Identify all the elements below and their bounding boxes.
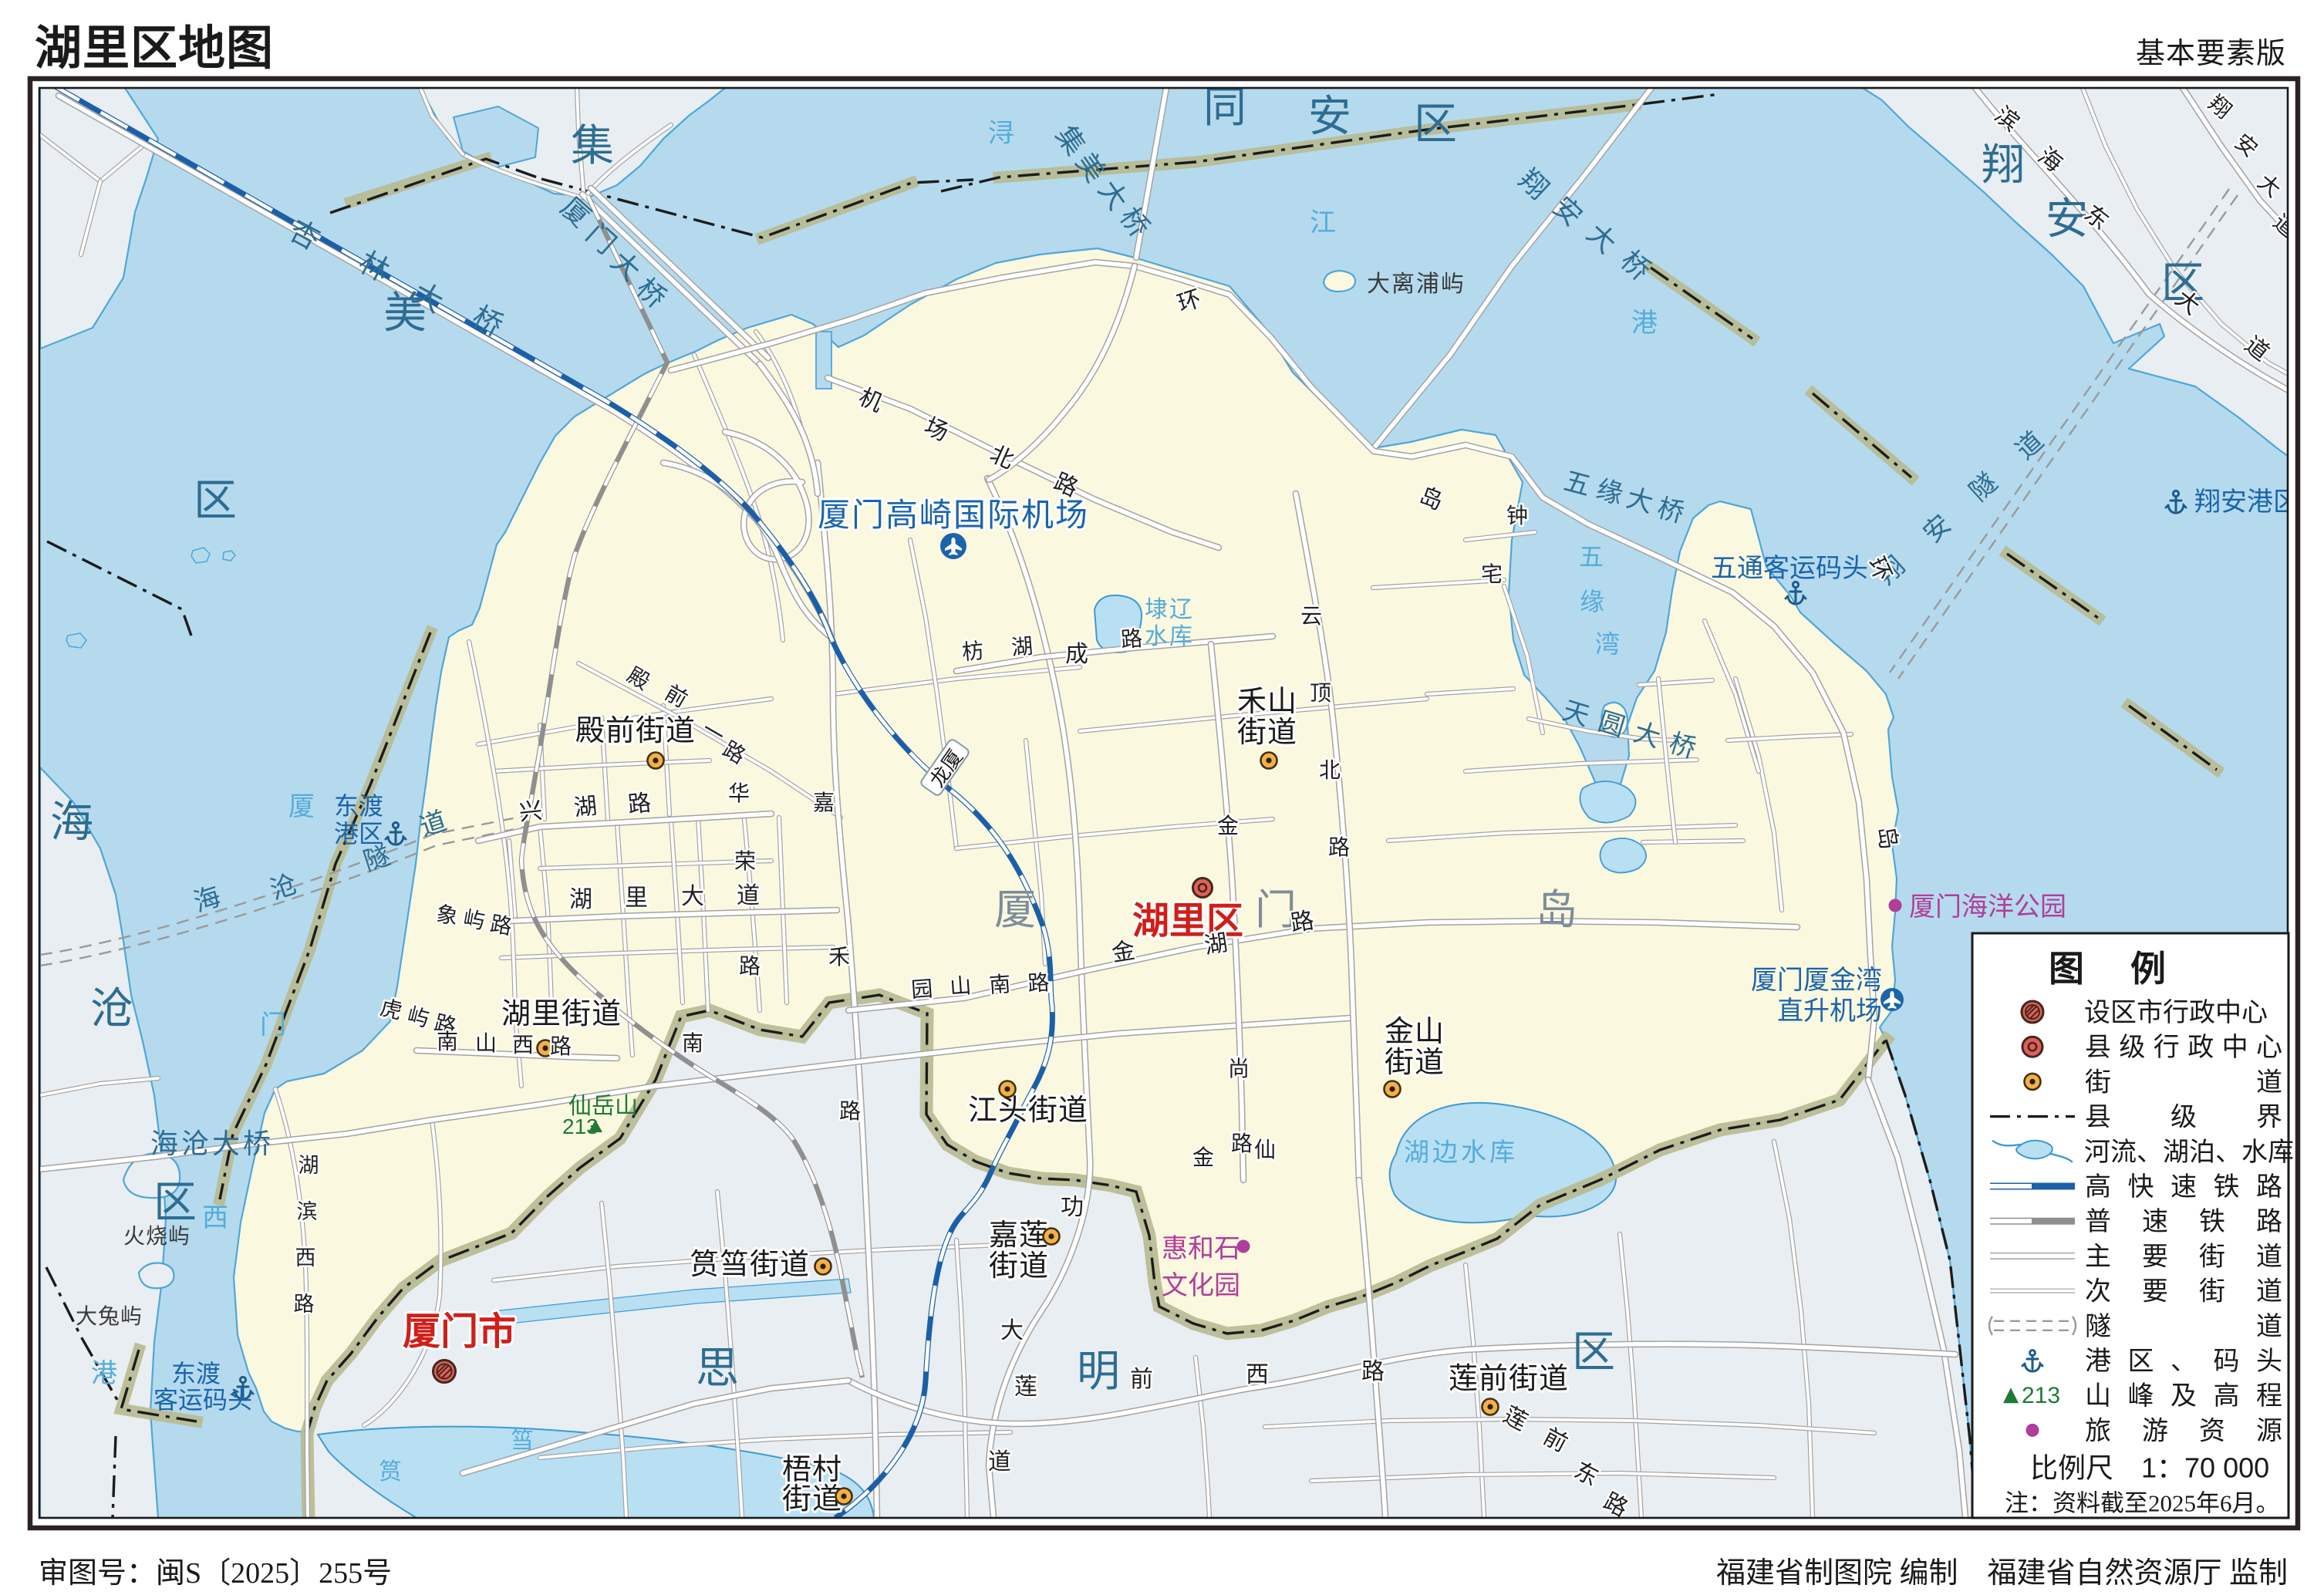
svg-text:南: 南 [682, 1031, 703, 1056]
svg-text:思: 思 [696, 1345, 739, 1393]
svg-text:殿前街道: 殿前街道 [575, 715, 696, 747]
svg-text:西: 西 [202, 1204, 228, 1232]
svg-text:程: 程 [2256, 1382, 2282, 1411]
svg-text:注：资料截至2025年6月。: 注：资料截至2025年6月。 [2005, 1490, 2280, 1517]
svg-text:区: 区 [1414, 101, 1457, 149]
svg-text:象: 象 [434, 902, 460, 929]
svg-text:213: 213 [562, 1114, 599, 1138]
svg-text:主: 主 [2085, 1243, 2111, 1271]
svg-text:道: 道 [2256, 1312, 2282, 1341]
svg-text:级: 级 [2119, 1033, 2145, 1062]
svg-text:县: 县 [2085, 1104, 2111, 1132]
svg-text:速: 速 [2142, 1208, 2168, 1236]
svg-text:门: 门 [260, 1010, 286, 1040]
svg-text:文化园: 文化园 [1162, 1271, 1240, 1300]
svg-text:码: 码 [2214, 1347, 2240, 1376]
svg-text:海: 海 [50, 799, 93, 847]
svg-text:路: 路 [2256, 1172, 2282, 1202]
svg-text:园: 园 [910, 977, 933, 1003]
svg-text:街道: 街道 [782, 1483, 842, 1516]
svg-text:滨: 滨 [297, 1200, 318, 1223]
svg-text:明: 明 [1077, 1348, 1120, 1396]
svg-text:岛: 岛 [1873, 824, 1902, 851]
svg-text:道: 道 [737, 883, 760, 909]
svg-text:路: 路 [488, 912, 514, 939]
svg-text:福建省制图院 编制 福建省自然资源厅 监制: 福建省制图院 编制 福建省自然资源厅 监制 [1716, 1557, 2288, 1590]
svg-text:厦门海洋公园: 厦门海洋公园 [1909, 892, 2066, 922]
svg-text:厦门市: 厦门市 [403, 1311, 516, 1353]
svg-text:铁: 铁 [2199, 1207, 2225, 1236]
svg-text:路: 路 [550, 1034, 572, 1059]
svg-text:路: 路 [1027, 970, 1050, 996]
svg-text:资: 资 [2199, 1417, 2225, 1445]
svg-text:湾: 湾 [1595, 630, 1620, 658]
svg-text:西: 西 [295, 1246, 316, 1270]
svg-text:路: 路 [1231, 1131, 1253, 1156]
svg-text:直升机场: 直升机场 [1777, 996, 1882, 1026]
svg-text:湖里区: 湖里区 [1132, 901, 1243, 942]
svg-text:山: 山 [949, 973, 972, 1000]
svg-text:快: 快 [2128, 1172, 2154, 1202]
svg-text:级: 级 [2171, 1103, 2197, 1132]
svg-text:港: 港 [91, 1360, 117, 1388]
svg-text:海沧大桥: 海沧大桥 [150, 1128, 274, 1159]
svg-text:厦: 厦 [288, 793, 315, 821]
svg-text:东渡: 东渡 [334, 792, 383, 820]
svg-text:安: 安 [1308, 93, 1351, 141]
svg-text:山: 山 [475, 1031, 497, 1056]
svg-text:区: 区 [153, 1179, 197, 1227]
svg-text:港区: 港区 [334, 820, 383, 848]
svg-text:江: 江 [1310, 209, 1336, 238]
svg-text:顶: 顶 [1310, 682, 1331, 706]
svg-text:高: 高 [2214, 1381, 2240, 1411]
svg-text:设区市行政中心: 设区市行政中心 [2084, 998, 2268, 1027]
svg-text:路: 路 [839, 1099, 861, 1124]
svg-text:枋: 枋 [961, 639, 985, 665]
svg-text:南: 南 [437, 1030, 458, 1054]
svg-text:头: 头 [2256, 1347, 2282, 1376]
svg-text:宅: 宅 [1481, 562, 1503, 587]
svg-text:213: 213 [2022, 1383, 2060, 1408]
svg-text:道: 道 [2256, 1067, 2282, 1097]
svg-text:厦: 厦 [994, 887, 1036, 933]
svg-text:街道: 街道 [1237, 717, 1297, 749]
svg-text:西: 西 [1246, 1362, 1269, 1388]
svg-text:路: 路 [2256, 1207, 2282, 1236]
svg-text:华: 华 [728, 781, 750, 806]
svg-text:缘: 缘 [1580, 588, 1604, 615]
svg-text:水库: 水库 [1145, 624, 1194, 649]
svg-text:道: 道 [2256, 1242, 2282, 1271]
svg-text:区: 区 [194, 477, 237, 525]
svg-text:厦门厦金湾: 厦门厦金湾 [1751, 966, 1882, 995]
svg-text:五通客运码头: 五通客运码头 [1711, 554, 1868, 583]
svg-text:路: 路 [1328, 835, 1350, 860]
svg-text:行: 行 [2154, 1033, 2180, 1062]
svg-text:港: 港 [1631, 309, 1658, 338]
svg-text:要: 要 [2142, 1243, 2168, 1271]
svg-text:普: 普 [2085, 1207, 2111, 1236]
svg-text:莲: 莲 [1014, 1374, 1037, 1400]
svg-text:功: 功 [1061, 1195, 1084, 1220]
svg-text:路: 路 [1361, 1359, 1385, 1384]
svg-text:前: 前 [1130, 1367, 1153, 1392]
svg-text:仙: 仙 [1254, 1138, 1276, 1162]
svg-text:及: 及 [2171, 1382, 2197, 1411]
svg-text:岛: 岛 [1536, 887, 1577, 933]
svg-text:嘉莲: 嘉莲 [989, 1219, 1049, 1252]
svg-text:莲前街道: 莲前街道 [1449, 1363, 1569, 1395]
svg-text:中: 中 [2222, 1033, 2248, 1062]
svg-text:铁: 铁 [2214, 1172, 2240, 1202]
svg-text:路: 路 [626, 791, 652, 818]
svg-text:东渡: 东渡 [171, 1360, 221, 1388]
svg-text:湖: 湖 [299, 1154, 319, 1177]
svg-text:屿: 屿 [461, 906, 487, 934]
svg-text:比例尺 1：70 000: 比例尺 1：70 000 [2030, 1452, 2269, 1484]
svg-text:大兔屿: 大兔屿 [76, 1304, 143, 1329]
svg-text:湖: 湖 [1202, 930, 1229, 959]
svg-text:山: 山 [2085, 1382, 2111, 1411]
svg-text:厦门高崎国际机场: 厦门高崎国际机场 [818, 497, 1089, 533]
svg-text:尚: 尚 [1228, 1057, 1250, 1081]
svg-text:翔: 翔 [1982, 142, 2025, 190]
svg-text:游: 游 [2142, 1416, 2168, 1445]
svg-text:金: 金 [1110, 938, 1137, 966]
svg-text:、: 、 [2171, 1347, 2197, 1376]
svg-text:江头街道: 江头街道 [968, 1094, 1088, 1127]
svg-text:禾山: 禾山 [1237, 686, 1297, 718]
svg-text:金: 金 [1217, 814, 1239, 838]
svg-text:禾: 禾 [828, 946, 850, 969]
svg-text:要: 要 [2142, 1278, 2168, 1307]
svg-text:街道: 街道 [1385, 1047, 1445, 1079]
svg-text:路: 路 [1120, 626, 1144, 652]
svg-text:火烧屿: 火烧屿 [123, 1224, 191, 1249]
svg-text:道: 道 [988, 1449, 1011, 1475]
svg-text:湖里街道: 湖里街道 [501, 998, 622, 1030]
svg-text:审图号：闽S〔2025〕255号: 审图号：闽S〔2025〕255号 [39, 1557, 392, 1590]
svg-text:兴: 兴 [518, 798, 543, 826]
svg-text:西: 西 [512, 1034, 534, 1057]
svg-text:港: 港 [2085, 1347, 2111, 1376]
svg-text:客运码头: 客运码头 [153, 1386, 252, 1414]
svg-text:街: 街 [2085, 1067, 2111, 1097]
svg-text:湖: 湖 [569, 887, 592, 912]
svg-text:界: 界 [2256, 1104, 2282, 1132]
svg-text:心: 心 [2256, 1034, 2282, 1062]
svg-text:路: 路 [739, 954, 761, 979]
svg-text:筜: 筜 [511, 1428, 534, 1454]
svg-text:北: 北 [1319, 759, 1341, 783]
svg-text:政: 政 [2187, 1033, 2214, 1062]
svg-text:街道: 街道 [989, 1250, 1049, 1283]
svg-text:湖边水库: 湖边水库 [1404, 1138, 1518, 1167]
svg-text:成: 成 [1065, 642, 1088, 667]
svg-text:大: 大 [681, 884, 704, 909]
svg-text:道: 道 [2256, 1277, 2282, 1307]
svg-text:峰: 峰 [2128, 1381, 2154, 1411]
svg-text:隧: 隧 [2085, 1313, 2111, 1341]
svg-text:区: 区 [1572, 1329, 1615, 1377]
svg-text:金山: 金山 [1385, 1016, 1445, 1048]
svg-text:县: 县 [2085, 1034, 2111, 1062]
svg-text:街: 街 [2199, 1277, 2225, 1307]
svg-text:同: 同 [1203, 84, 1246, 132]
svg-text:嘉: 嘉 [813, 791, 835, 815]
svg-text:图例: 图例 [2049, 949, 2212, 989]
svg-text:速: 速 [2171, 1173, 2197, 1202]
svg-text:高: 高 [2085, 1172, 2111, 1202]
svg-text:街: 街 [2199, 1242, 2225, 1271]
svg-text:源: 源 [2256, 1417, 2282, 1445]
svg-text:五: 五 [1579, 543, 1604, 571]
svg-text:湖里区地图: 湖里区地图 [35, 23, 274, 75]
svg-text:大: 大 [1000, 1318, 1024, 1344]
svg-text:门: 门 [1255, 887, 1297, 933]
svg-text:筼: 筼 [379, 1459, 402, 1485]
svg-text:大离浦屿: 大离浦屿 [1367, 271, 1466, 297]
svg-text:金: 金 [1192, 1145, 1214, 1170]
svg-text:湖: 湖 [572, 794, 598, 821]
svg-text:旅: 旅 [2085, 1416, 2111, 1445]
svg-text:湖: 湖 [1010, 635, 1034, 660]
svg-text:次: 次 [2085, 1277, 2111, 1307]
svg-text:翔安港区: 翔安港区 [2194, 487, 2299, 517]
svg-text:埭辽: 埭辽 [1145, 597, 1194, 622]
svg-text:沧: 沧 [90, 986, 133, 1034]
svg-text:集: 集 [571, 123, 614, 170]
svg-text:基本要素版: 基本要素版 [2136, 38, 2286, 70]
svg-text:荣: 荣 [734, 849, 756, 874]
svg-text:浔: 浔 [988, 120, 1014, 148]
svg-text:惠和石: 惠和石 [1162, 1234, 1240, 1263]
svg-text:梧村: 梧村 [782, 1454, 842, 1486]
svg-text:区: 区 [2128, 1347, 2154, 1376]
svg-text:里: 里 [625, 885, 648, 911]
svg-text:路: 路 [294, 1293, 315, 1316]
svg-text:河流、湖泊、水库: 河流、湖泊、水库 [2084, 1138, 2294, 1167]
svg-text:筼筜街道: 筼筜街道 [690, 1249, 810, 1281]
svg-text:钟: 钟 [1506, 504, 1528, 528]
svg-text:路: 路 [1289, 908, 1316, 936]
svg-text:云: 云 [1300, 605, 1322, 629]
svg-text:南: 南 [988, 972, 1011, 998]
